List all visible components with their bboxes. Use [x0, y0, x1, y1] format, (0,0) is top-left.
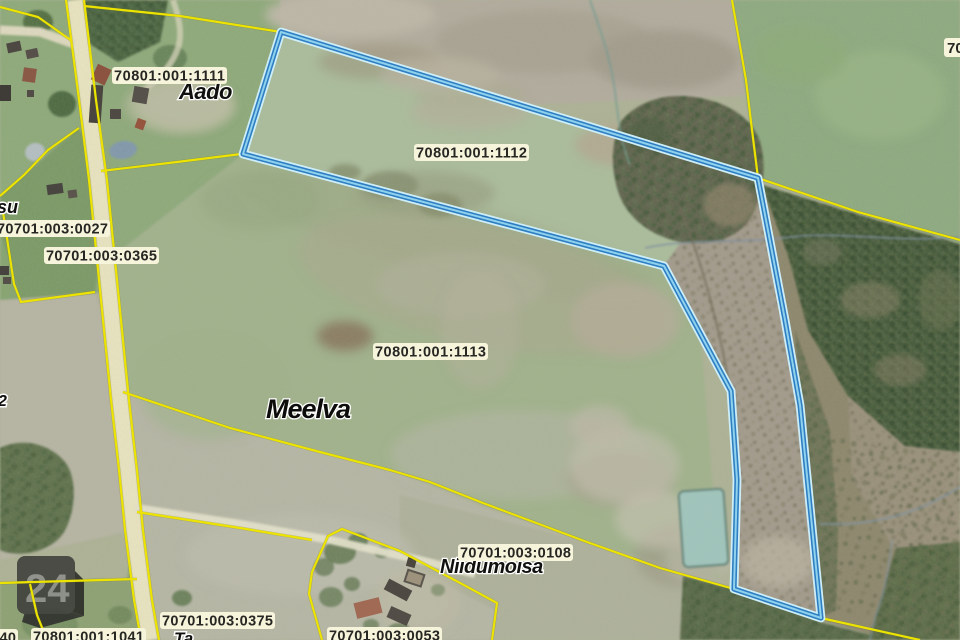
- svg-text:70: 70: [947, 40, 960, 57]
- svg-text:70801:001:1040: 70801:001:1040: [0, 631, 16, 640]
- svg-text:70701:003:0375: 70701:003:0375: [162, 614, 273, 630]
- svg-text:70801:001:1111: 70801:001:1111: [114, 69, 225, 85]
- svg-text:su: su: [0, 197, 18, 217]
- svg-text:70801:001:1112: 70801:001:1112: [416, 146, 527, 162]
- svg-text:Ta: Ta: [174, 629, 193, 640]
- svg-text:70801:001:1113: 70801:001:1113: [375, 345, 486, 361]
- svg-text:2: 2: [0, 393, 7, 410]
- svg-text:70701:003:0108: 70701:003:0108: [460, 546, 571, 562]
- svg-text:70701:003:0027: 70701:003:0027: [0, 222, 108, 238]
- svg-text:70801:001:1041: 70801:001:1041: [33, 630, 144, 640]
- svg-text:70701:003:0365: 70701:003:0365: [46, 249, 157, 265]
- svg-text:Meelva: Meelva: [266, 394, 351, 424]
- svg-text:70701:003:0053: 70701:003:0053: [329, 629, 440, 640]
